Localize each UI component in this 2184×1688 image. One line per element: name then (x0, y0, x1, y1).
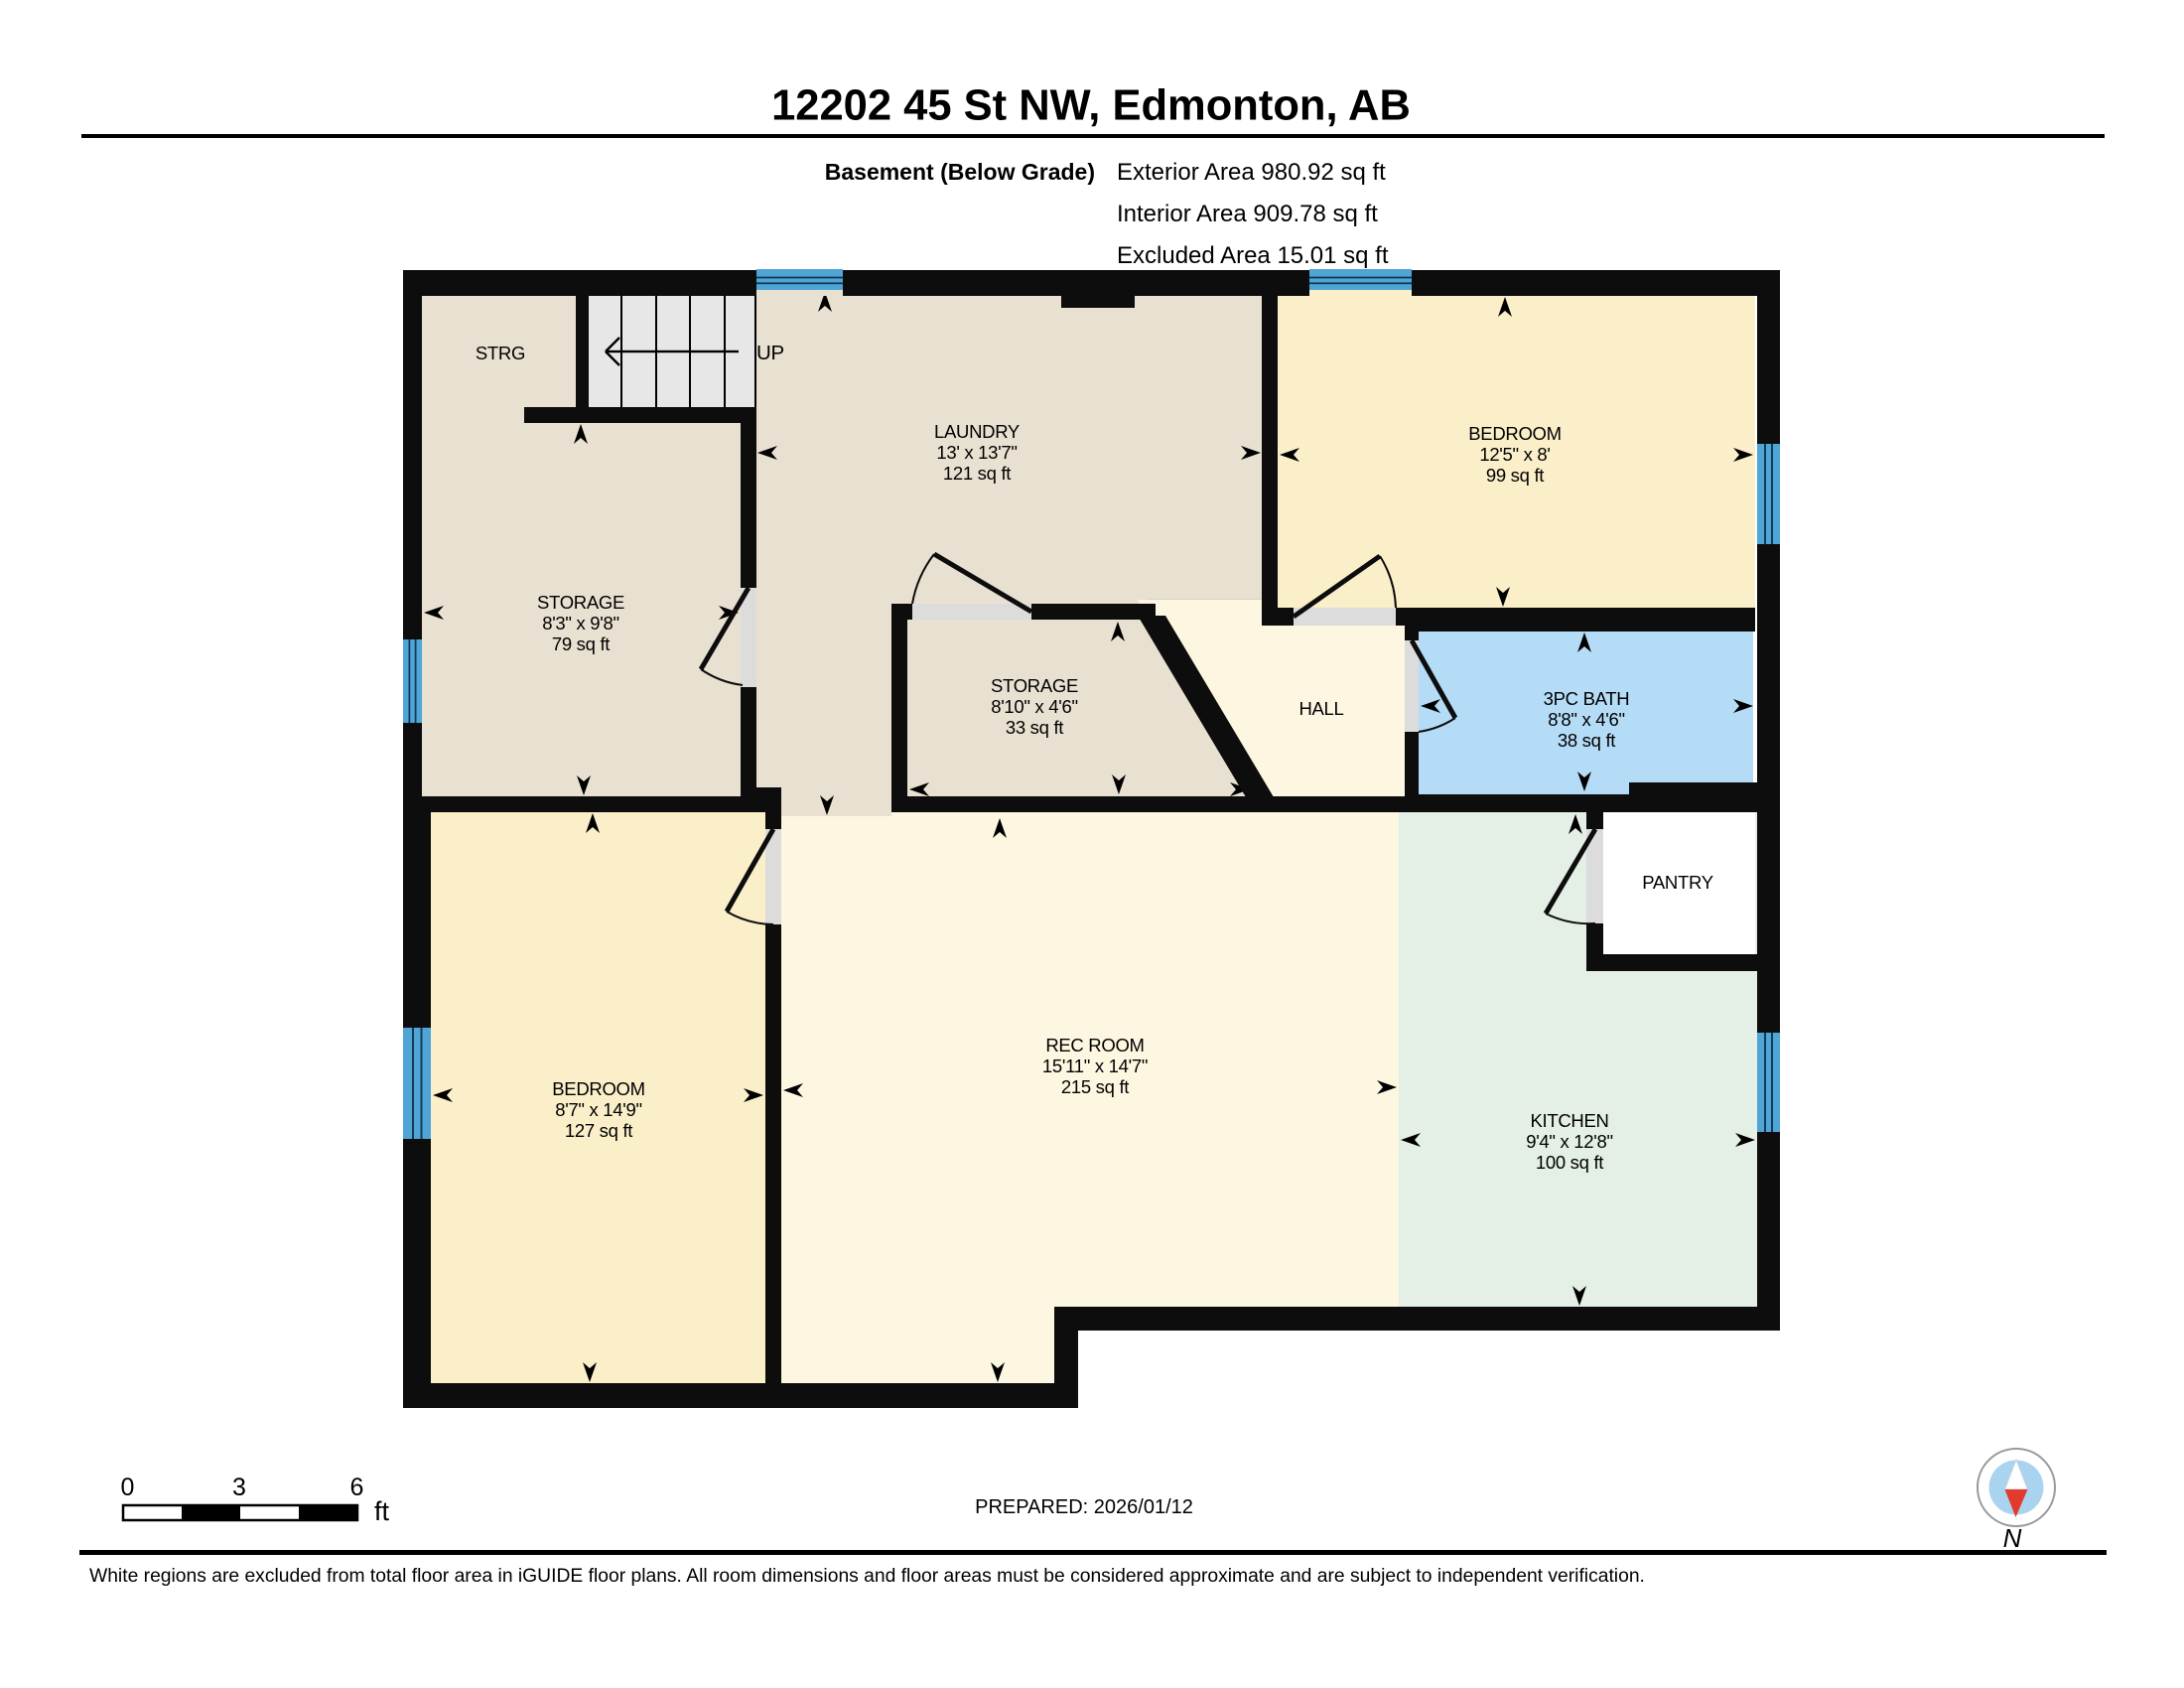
svg-text:121 sq ft: 121 sq ft (943, 463, 1011, 484)
svg-text:9'4" x 12'8": 9'4" x 12'8" (1526, 1131, 1613, 1152)
svg-text:215 sq ft: 215 sq ft (1061, 1076, 1129, 1097)
svg-text:3PC BATH: 3PC BATH (1544, 688, 1630, 709)
svg-text:White regions are excluded fro: White regions are excluded from total fl… (89, 1566, 1645, 1587)
svg-text:Basement (Below Grade): Basement (Below Grade) (825, 159, 1095, 185)
svg-text:12202 45 St NW, Edmonton, AB: 12202 45 St NW, Edmonton, AB (771, 82, 1411, 130)
svg-text:BEDROOM: BEDROOM (552, 1078, 645, 1099)
svg-text:HALL: HALL (1298, 698, 1343, 719)
svg-text:15'11" x 14'7": 15'11" x 14'7" (1042, 1055, 1148, 1076)
svg-text:Interior Area 909.78 sq ft: Interior Area 909.78 sq ft (1117, 201, 1378, 227)
svg-text:STORAGE: STORAGE (991, 675, 1078, 696)
svg-text:13' x 13'7": 13' x 13'7" (936, 442, 1017, 463)
svg-text:99 sq ft: 99 sq ft (1486, 465, 1544, 486)
svg-text:ft: ft (374, 1496, 390, 1526)
svg-text:STRG: STRG (476, 343, 525, 363)
svg-text:127 sq ft: 127 sq ft (565, 1120, 632, 1141)
svg-text:8'8" x 4'6": 8'8" x 4'6" (1548, 709, 1625, 730)
svg-text:0: 0 (121, 1474, 135, 1501)
svg-text:N: N (2003, 1523, 2022, 1553)
svg-text:79 sq ft: 79 sq ft (552, 633, 610, 654)
svg-text:Excluded Area 15.01 sq ft: Excluded Area 15.01 sq ft (1117, 242, 1389, 269)
svg-text:33 sq ft: 33 sq ft (1006, 717, 1063, 738)
svg-text:8'10" x 4'6": 8'10" x 4'6" (991, 696, 1078, 717)
svg-text:LAUNDRY: LAUNDRY (934, 421, 1020, 442)
svg-text:UP: UP (756, 342, 784, 364)
svg-text:6: 6 (350, 1474, 364, 1501)
svg-text:KITCHEN: KITCHEN (1530, 1110, 1608, 1131)
svg-text:3: 3 (232, 1474, 246, 1501)
svg-text:100 sq ft: 100 sq ft (1536, 1152, 1603, 1173)
svg-text:Exterior Area 980.92 sq ft: Exterior Area 980.92 sq ft (1117, 159, 1386, 186)
svg-text:BEDROOM: BEDROOM (1468, 423, 1562, 444)
svg-text:38 sq ft: 38 sq ft (1558, 730, 1615, 751)
svg-text:12'5" x 8': 12'5" x 8' (1479, 444, 1550, 465)
svg-text:REC ROOM: REC ROOM (1045, 1035, 1144, 1055)
svg-text:STORAGE: STORAGE (537, 592, 624, 613)
svg-text:8'3" x 9'8": 8'3" x 9'8" (542, 613, 619, 633)
svg-text:PANTRY: PANTRY (1642, 872, 1713, 893)
svg-text:8'7" x 14'9": 8'7" x 14'9" (555, 1099, 642, 1120)
svg-text:PREPARED: 2026/01/12: PREPARED: 2026/01/12 (975, 1496, 1193, 1518)
